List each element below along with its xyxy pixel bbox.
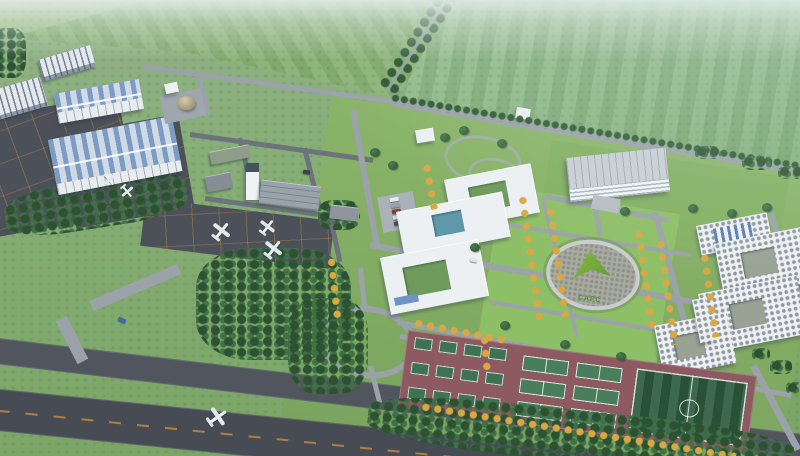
- control-tower: [246, 163, 259, 200]
- basketball-court: [414, 337, 433, 351]
- shrub: [752, 348, 770, 360]
- tree: [620, 207, 630, 216]
- tree: [459, 126, 469, 135]
- tree: [688, 204, 698, 213]
- volleyball-court: [522, 355, 570, 376]
- courtyard: [402, 260, 451, 298]
- tree: [388, 161, 398, 170]
- aerial-rendering: CAFC: [0, 0, 800, 456]
- tree: [500, 321, 510, 330]
- hedge-bush: [695, 146, 721, 159]
- basketball-court: [438, 340, 457, 354]
- dome-building: [178, 96, 195, 110]
- tree: [370, 148, 380, 157]
- car: [303, 170, 310, 175]
- tree: [616, 352, 626, 361]
- parked-car: [389, 197, 399, 203]
- atrium-courtyard: [431, 210, 465, 237]
- hedge-bush: [742, 156, 772, 170]
- tree: [470, 243, 480, 252]
- shrub: [770, 360, 792, 374]
- shrub: [786, 382, 800, 394]
- basketball-court: [460, 368, 479, 382]
- volleyball-court: [575, 362, 623, 383]
- hedge-bush: [778, 166, 800, 179]
- volleyball-court: [572, 385, 620, 406]
- basketball-court: [410, 362, 429, 376]
- tree: [497, 139, 507, 148]
- tree: [727, 209, 737, 218]
- gatehouse: [415, 128, 435, 144]
- parked-car: [391, 203, 401, 209]
- control-tower-cab: [246, 163, 259, 172]
- forest-patch: [0, 28, 26, 78]
- glass-band: [394, 294, 419, 306]
- courtyard: [740, 247, 778, 279]
- volleyball-court: [519, 378, 567, 399]
- forest-patch: [288, 298, 368, 394]
- tree: [560, 340, 570, 349]
- tree: [440, 133, 450, 142]
- basketball-court: [435, 365, 454, 379]
- tree: [762, 203, 772, 212]
- courtyard: [729, 298, 767, 330]
- arrow-emblem: [564, 247, 618, 287]
